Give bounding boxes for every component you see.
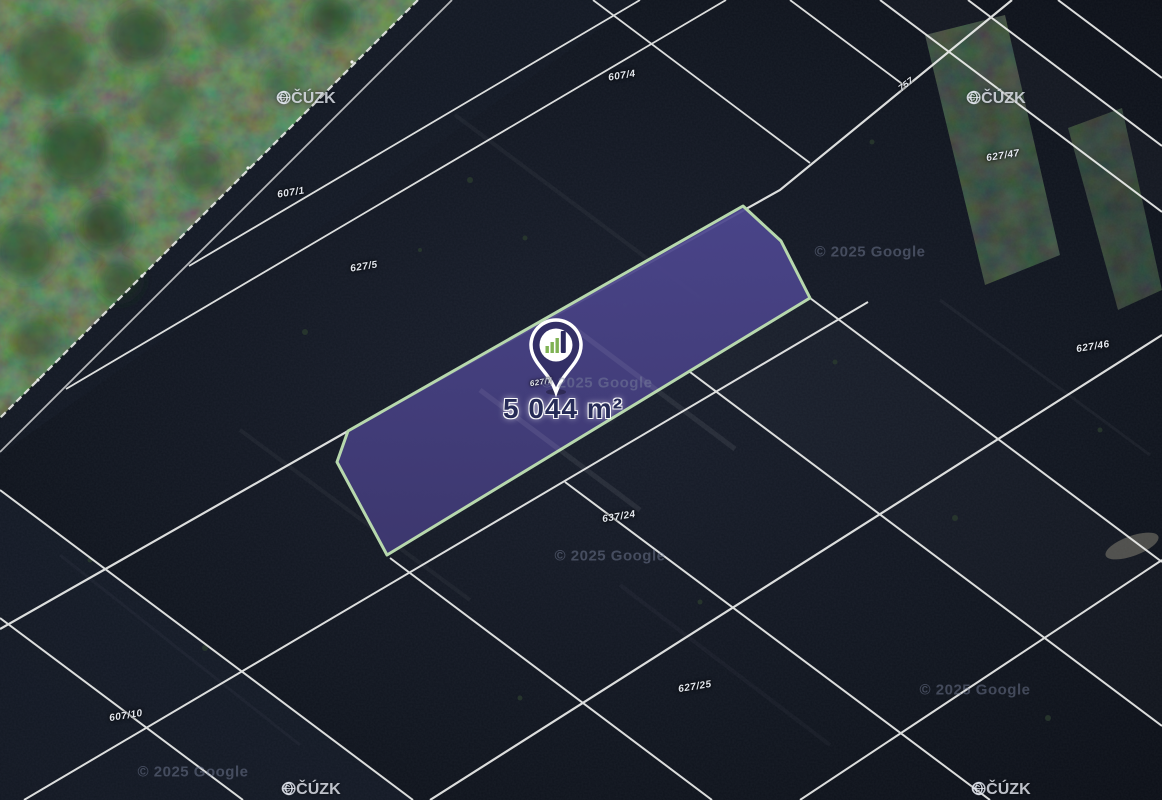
satellite-map-canvas[interactable]: 607/1 607/4 757 627/47 627/5 627/46 627/… <box>0 0 1162 800</box>
satellite-imagery <box>0 0 1162 800</box>
